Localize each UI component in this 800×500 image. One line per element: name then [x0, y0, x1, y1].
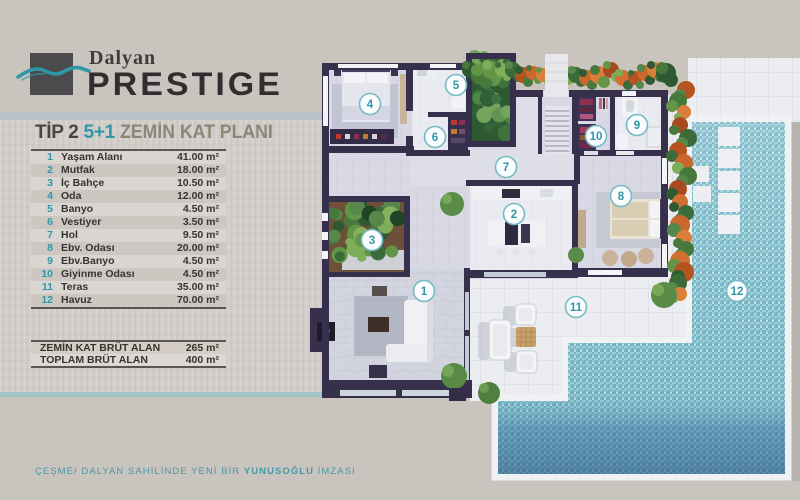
svg-text:3: 3 — [369, 235, 375, 247]
svg-text:12: 12 — [731, 286, 744, 298]
svg-text:9: 9 — [634, 120, 640, 132]
svg-text:6: 6 — [432, 132, 438, 144]
svg-text:10: 10 — [590, 131, 603, 143]
svg-text:5: 5 — [453, 80, 460, 92]
svg-text:4: 4 — [367, 99, 374, 111]
svg-text:7: 7 — [503, 162, 509, 174]
svg-text:8: 8 — [618, 191, 625, 203]
svg-text:2: 2 — [511, 209, 517, 221]
svg-text:1: 1 — [421, 286, 428, 298]
svg-text:11: 11 — [570, 302, 583, 314]
